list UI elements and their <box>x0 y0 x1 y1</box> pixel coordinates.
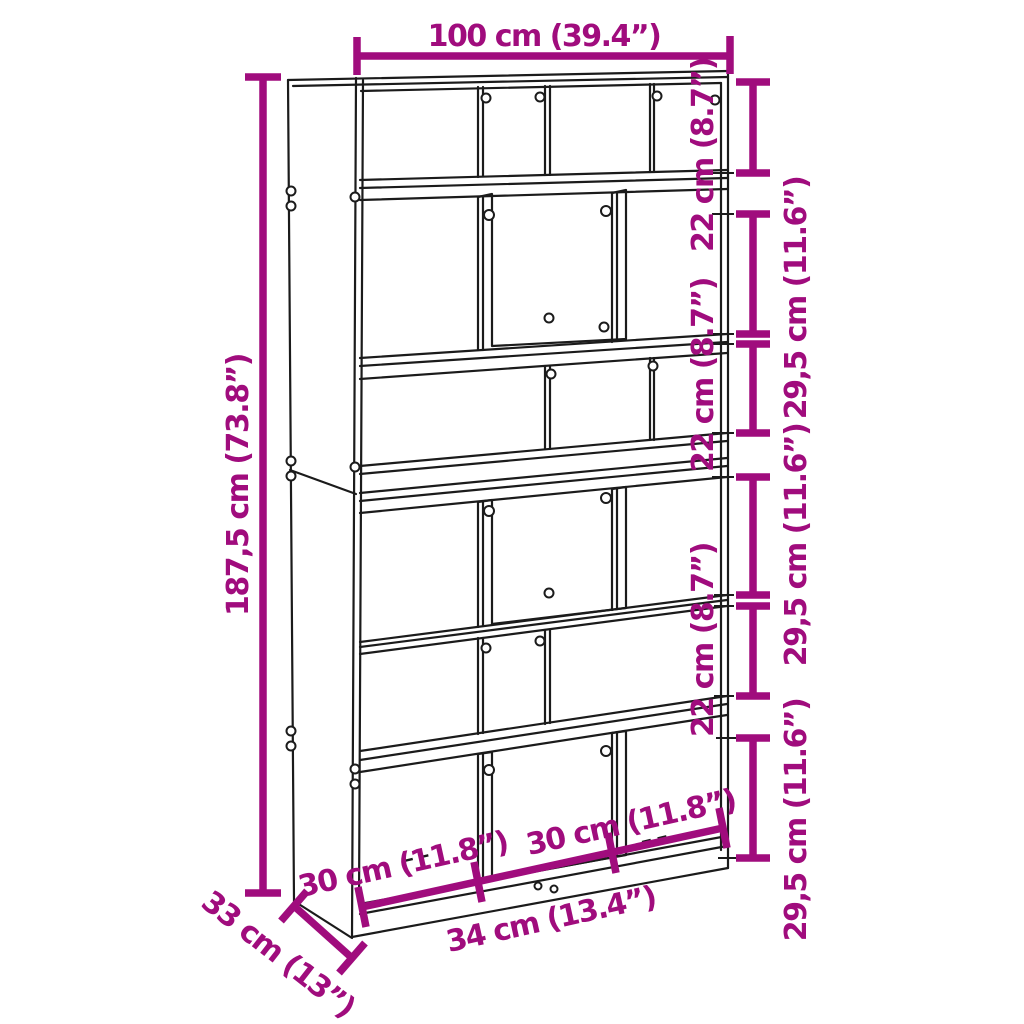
small-row-height-label-1: 22 cm (8.7”) <box>686 58 721 252</box>
bookcase-dimension-diagram: 100 cm (39.4”) 187,5 cm (73.8”) 22 cm (8… <box>0 0 1024 1024</box>
large-row-height-label-3: 29,5 cm (11.6”) <box>779 699 814 942</box>
row-height-dimension-chain <box>736 82 770 858</box>
diagram-canvas: 100 cm (39.4”) 187,5 cm (73.8”) 22 cm (8… <box>0 0 1024 1024</box>
width-dimension-label: 100 cm (39.4”) <box>428 19 661 54</box>
large-row-height-label-1: 29,5 cm (11.6”) <box>779 177 814 420</box>
small-row-height-label-2: 22 cm (8.7”) <box>686 278 721 472</box>
height-dimension-label: 187,5 cm (73.8”) <box>221 354 256 616</box>
depth-dimension-label: 33 cm (13”) <box>195 884 362 1024</box>
small-row-height-label-3: 22 cm (8.7”) <box>686 543 721 737</box>
large-row-height-label-2: 29,5 cm (11.6”) <box>779 424 814 667</box>
dividers <box>478 84 654 882</box>
